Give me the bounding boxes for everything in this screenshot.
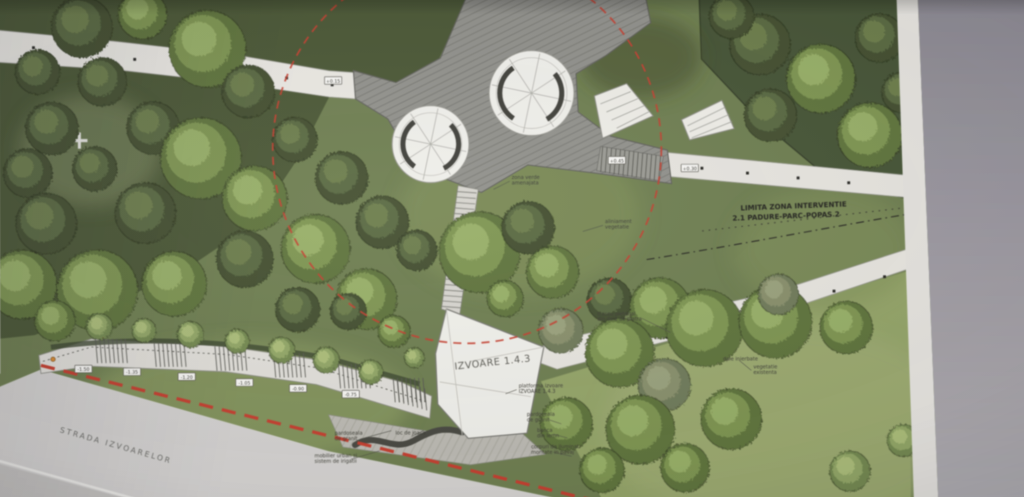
tree	[177, 321, 203, 347]
tree	[786, 44, 855, 113]
svg-text:traseu pietonaldin dale de pia: traseu pietonaldin dale de piatra	[597, 311, 642, 323]
landscape-site-plan: -1.50-1.35-1.20-1.05-0.90-0.75+0.45+0.30…	[0, 0, 1024, 497]
svg-text:-1.05: -1.05	[238, 381, 250, 387]
tree	[744, 89, 797, 142]
tree	[115, 183, 176, 244]
svg-text:mobilier urban sisistem de iri: mobilier urban sisistem de irigatii	[315, 453, 358, 465]
site-plan-photo: -1.50-1.35-1.20-1.05-0.90-0.75+0.45+0.30…	[0, 0, 1024, 497]
tree	[142, 251, 207, 316]
elevation-marker: +0.30	[681, 164, 698, 172]
tree	[268, 337, 294, 363]
tree	[526, 246, 579, 299]
svg-text:-1.20: -1.20	[181, 375, 193, 381]
svg-text:-1.50: -1.50	[77, 367, 89, 373]
elevation-marker: -1.35	[123, 368, 140, 376]
svg-text:aliniamentvegetatie: aliniamentvegetatie	[605, 219, 632, 231]
svg-text:corpuri de iluminatmontate in: corpuri de iluminatmontate in pavaj	[531, 444, 579, 456]
tree	[281, 214, 350, 283]
tree	[378, 315, 411, 348]
elevation-marker: +0.15	[325, 77, 342, 85]
tree	[855, 14, 904, 63]
tree	[539, 308, 584, 353]
elevation-marker: -0.90	[289, 384, 306, 392]
tree	[313, 347, 339, 373]
circular-plaza-2	[392, 105, 469, 182]
tree	[15, 50, 60, 95]
tree	[35, 301, 76, 342]
tree	[72, 146, 117, 191]
tree	[540, 397, 593, 450]
tree	[487, 280, 524, 317]
tree	[275, 287, 320, 332]
tree	[666, 289, 743, 366]
elevation-marker: -1.05	[236, 379, 253, 387]
tree	[701, 389, 762, 450]
tree	[273, 117, 318, 162]
tree	[78, 57, 127, 106]
tree	[315, 151, 368, 204]
tree	[580, 448, 625, 493]
tree	[359, 360, 383, 384]
svg-text:loc de joaca: loc de joaca	[395, 431, 425, 437]
elevation-marker: -1.50	[75, 365, 92, 373]
tree	[830, 451, 871, 492]
tree	[86, 313, 112, 339]
tree	[222, 65, 275, 118]
annotation: corpuri de iluminatmontate in pavaj	[531, 444, 579, 456]
tree	[820, 301, 873, 354]
elevation-marker: +0.45	[608, 156, 625, 164]
svg-text:vegetatieexistenta: vegetatieexistenta	[753, 364, 777, 376]
annotation: loc de joaca	[395, 431, 425, 437]
svg-text:-0.75: -0.75	[345, 392, 357, 398]
elevation-marker: -0.75	[342, 390, 359, 398]
tree	[132, 318, 156, 342]
tree	[51, 0, 112, 58]
svg-text:dale inierbate: dale inierbate	[723, 356, 758, 362]
svg-text:+0.30: +0.30	[683, 166, 697, 172]
photographed-screen: -1.50-1.35-1.20-1.05-0.90-0.75+0.45+0.30…	[0, 0, 1024, 497]
tree	[225, 329, 249, 353]
svg-text:-0.90: -0.90	[292, 386, 304, 392]
tree	[16, 193, 77, 254]
tree	[661, 443, 710, 492]
svg-text:+0.45: +0.45	[610, 158, 624, 164]
tree	[26, 102, 79, 155]
tree	[4, 149, 53, 198]
circular-plaza-1	[489, 50, 574, 135]
tree	[758, 274, 799, 315]
svg-text:+0.15: +0.15	[326, 79, 340, 85]
tree	[397, 230, 438, 271]
tree	[404, 348, 424, 368]
tree	[837, 103, 902, 168]
tree	[216, 231, 273, 288]
svg-text:-1.35: -1.35	[126, 370, 138, 376]
tree	[222, 166, 287, 231]
svg-text:zona verdeamenajata: zona verdeamenajata	[512, 175, 540, 187]
annotation: dale inierbate	[723, 356, 758, 362]
elevation-marker: -1.20	[178, 373, 195, 381]
